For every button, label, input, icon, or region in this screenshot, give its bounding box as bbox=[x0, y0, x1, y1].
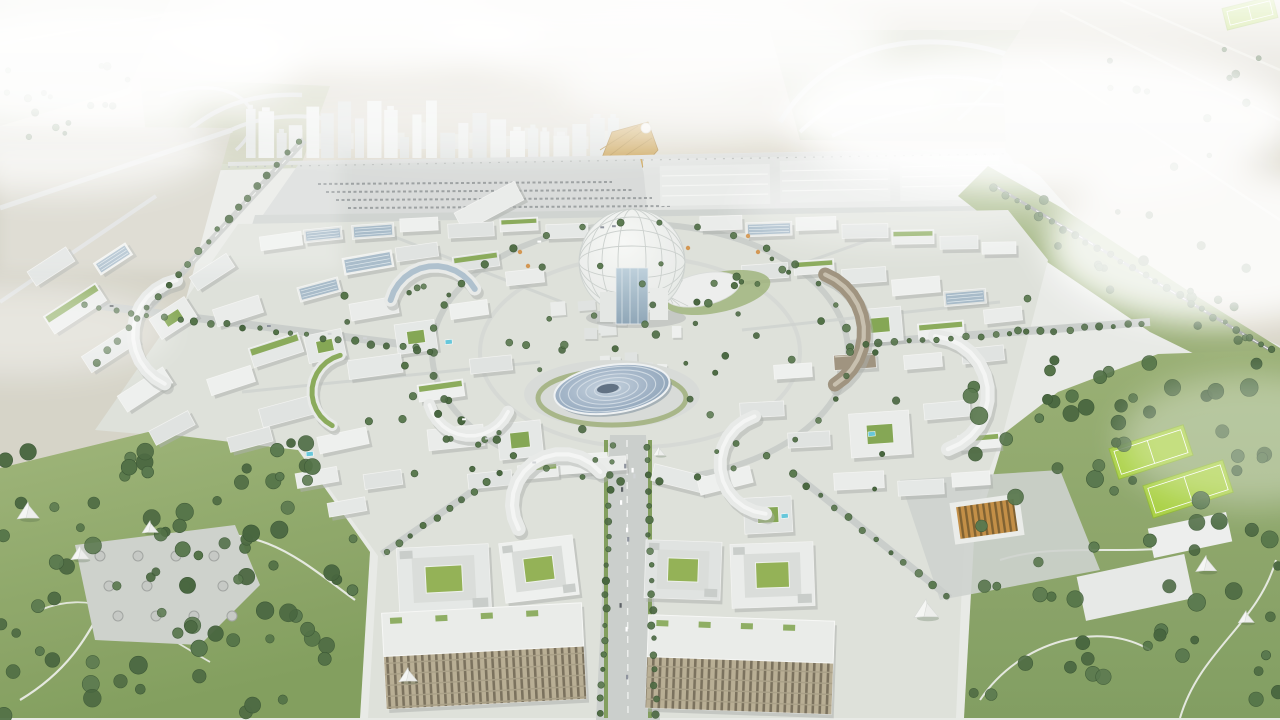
atmosphere-veil bbox=[0, 0, 1280, 720]
rendering-stage bbox=[0, 0, 1280, 720]
aerial-city-rendering bbox=[0, 0, 1280, 720]
